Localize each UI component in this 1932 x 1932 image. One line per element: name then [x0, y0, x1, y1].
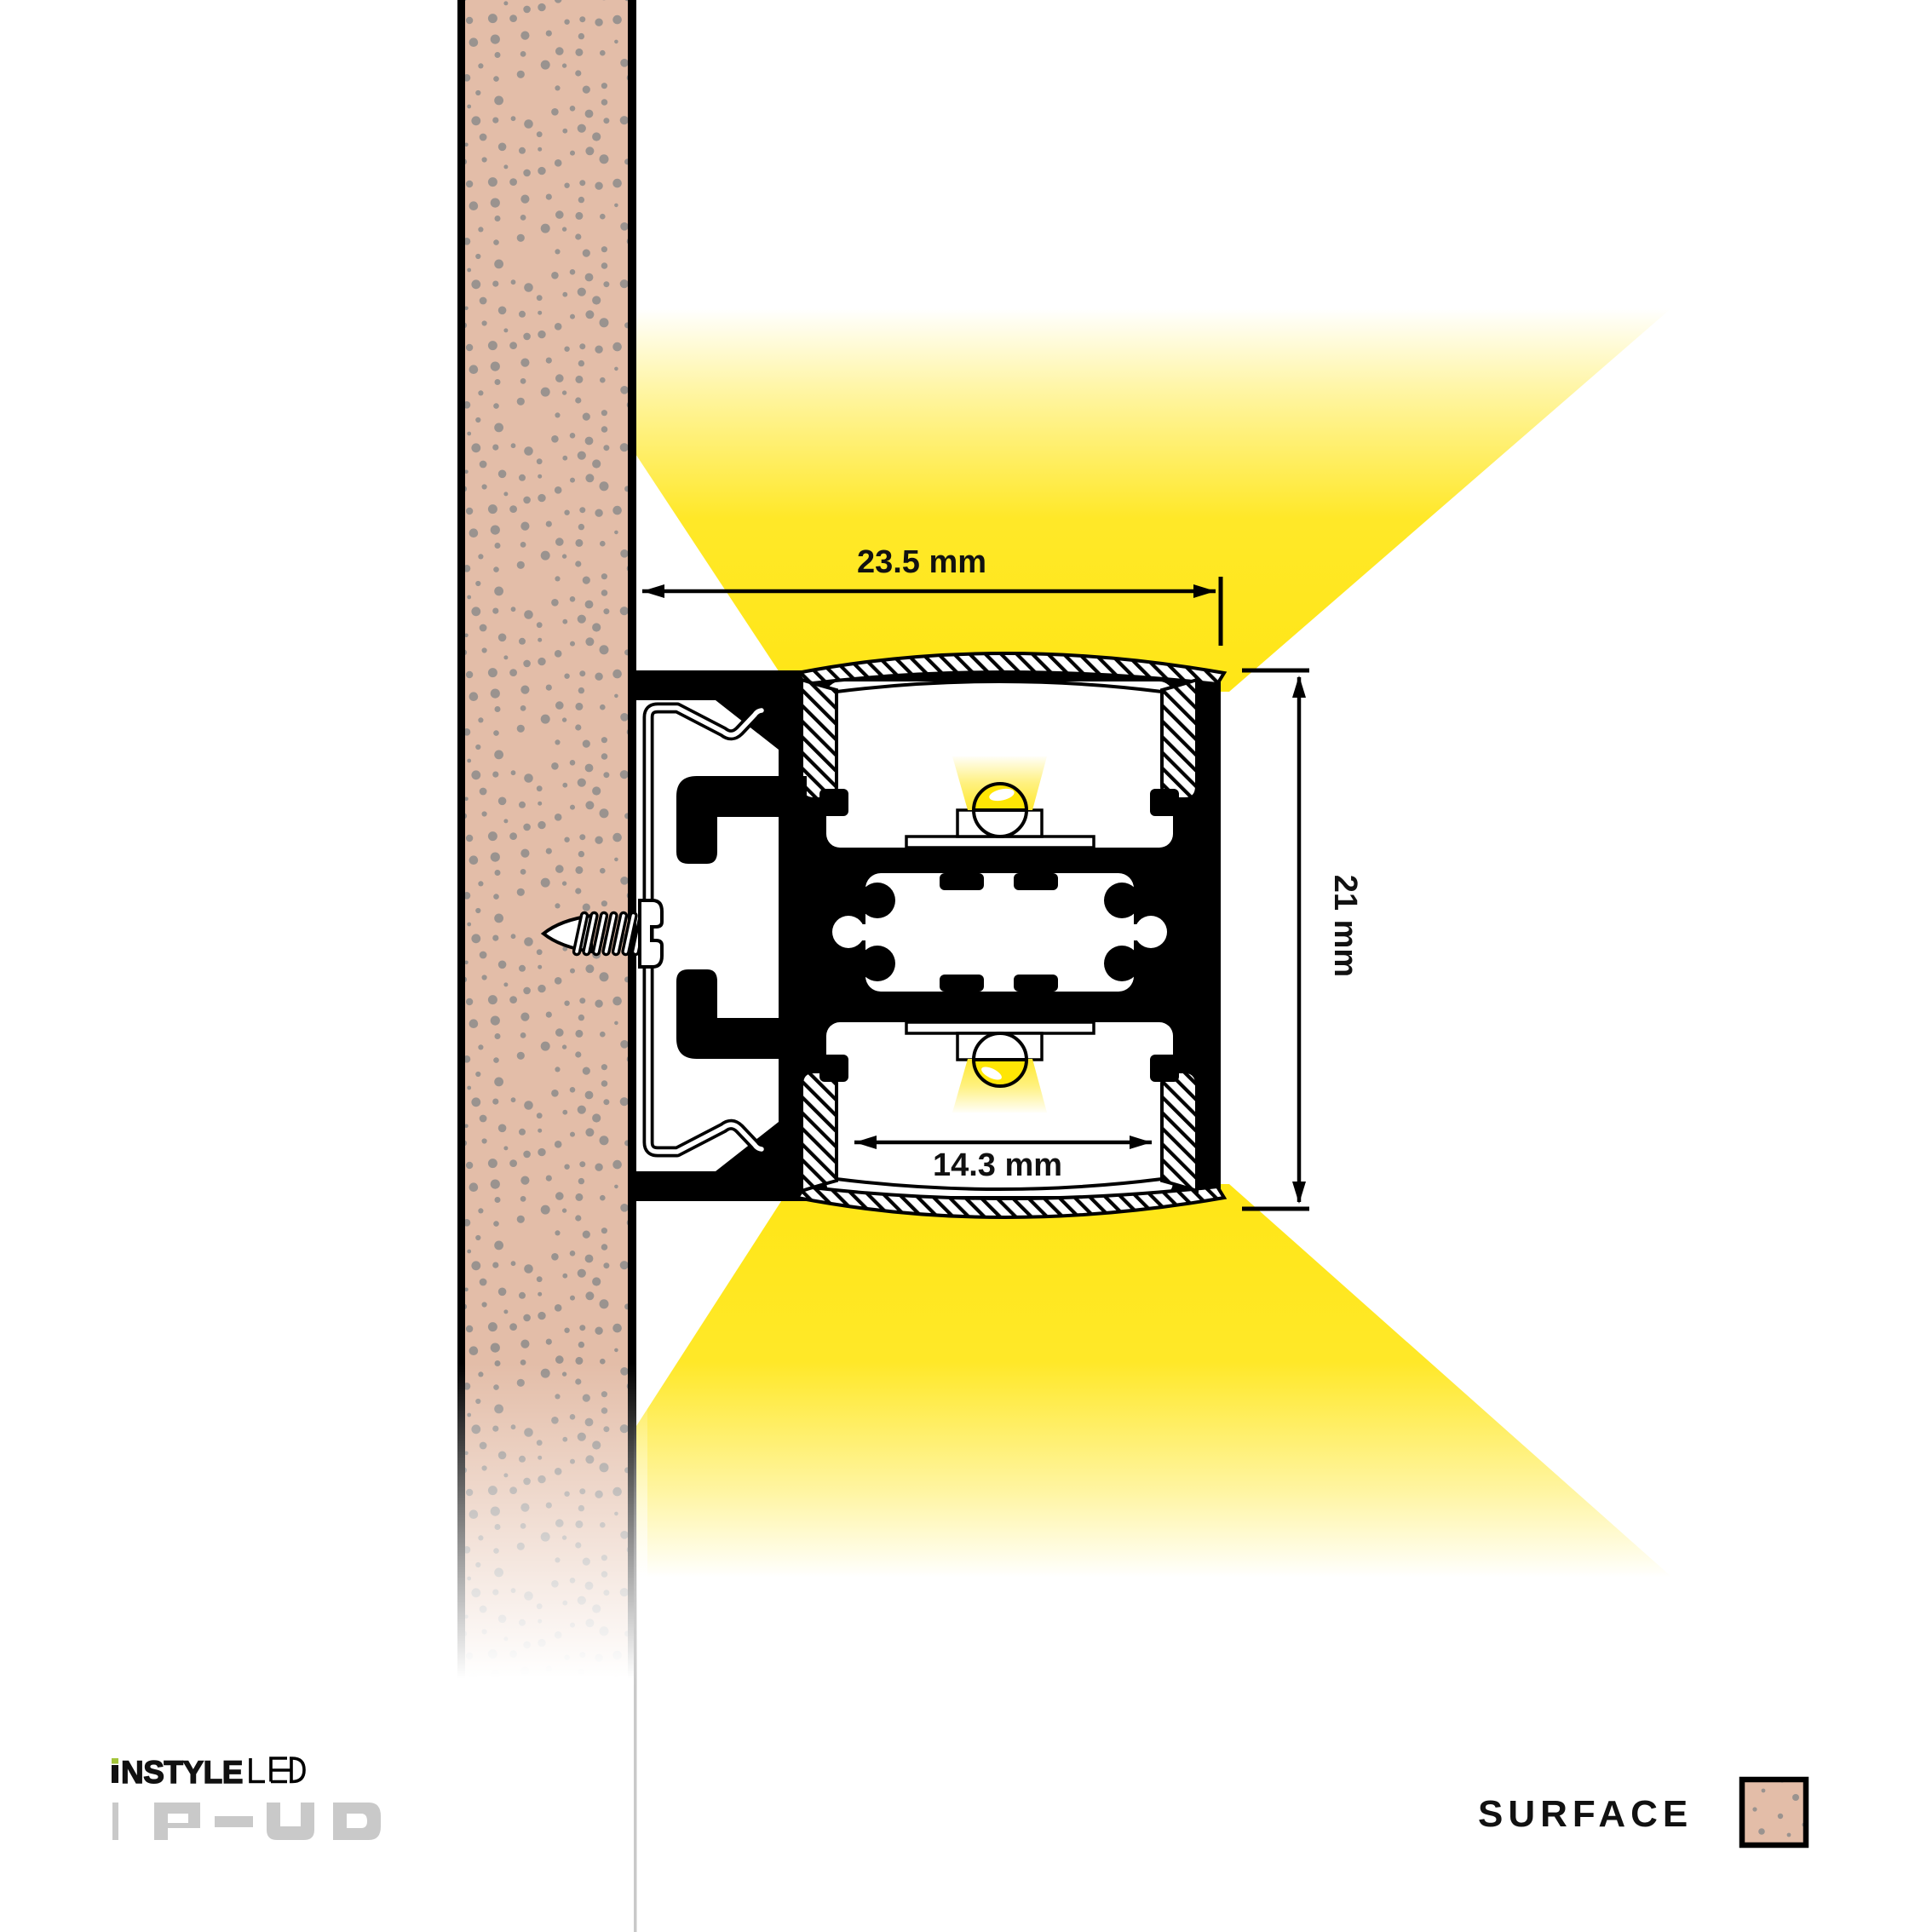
svg-text:NSTYLE: NSTYLE	[121, 1755, 243, 1790]
svg-text:21 mm: 21 mm	[1327, 875, 1363, 977]
svg-text:23.5 mm: 23.5 mm	[857, 544, 986, 580]
svg-text:SURFACE: SURFACE	[1478, 1793, 1693, 1835]
svg-text:14.3 mm: 14.3 mm	[933, 1147, 1062, 1183]
